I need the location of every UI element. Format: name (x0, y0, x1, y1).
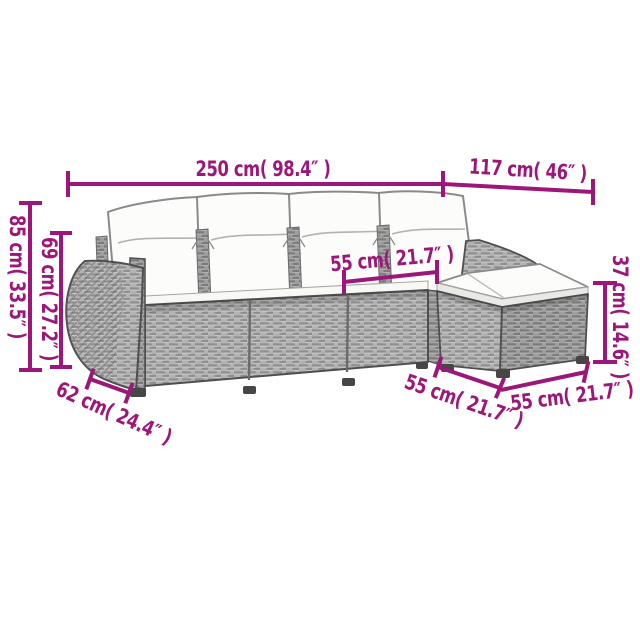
dim-ottoman-height-label: 37 cm( 14.6″ ) (608, 255, 632, 379)
dim-arm-height-label: 69 cm( 27.2″ ) (37, 237, 61, 361)
dim-total-width-label: 250 cm( 98.4″ ) (196, 157, 331, 181)
back-post-left (96, 236, 108, 264)
back-cushion-2 (197, 193, 298, 302)
dim-back-height-label: 85 cm( 33.5″ ) (5, 215, 29, 339)
product-dimension-image: 250 cm( 98.4″ ) 117 cm( 46″ ) 85 cm( 33.… (0, 0, 640, 640)
sofa-illustration (0, 0, 640, 640)
